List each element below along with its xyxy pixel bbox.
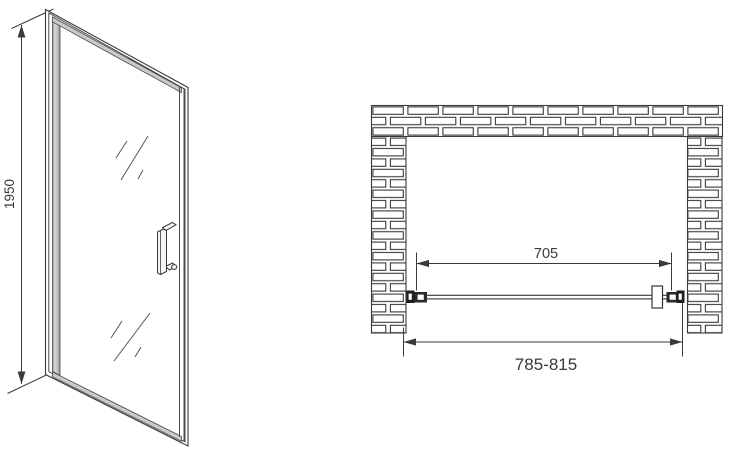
shower-door-drawing: 1950 xyxy=(0,0,734,454)
arrowhead-up xyxy=(18,25,26,38)
glass-width-dimension-705: 705 xyxy=(417,246,672,291)
brick-lintel-wall xyxy=(372,106,723,137)
arrowhead-left xyxy=(417,260,430,267)
clamp-slot xyxy=(670,295,676,300)
profile-pin xyxy=(679,294,682,300)
arrowhead-right xyxy=(659,260,672,267)
clamp-slot xyxy=(418,295,424,300)
brick-wall-right xyxy=(688,137,723,334)
arrowhead-right xyxy=(670,338,683,345)
handle-bar xyxy=(158,229,167,275)
opening-width-dimension: 785-815 xyxy=(404,303,683,374)
wall-profile-left xyxy=(407,291,428,304)
brick-wall-left xyxy=(372,137,407,334)
door-plan xyxy=(407,286,685,308)
profile-pin xyxy=(409,294,412,300)
arrowhead-down xyxy=(18,372,26,385)
door-plan-view: 705 785-815 xyxy=(372,106,723,375)
frame-profile-left xyxy=(53,17,61,376)
wall-profile-right xyxy=(667,291,685,304)
handle-stub-cap xyxy=(172,265,177,270)
height-dimension-label: 1950 xyxy=(2,179,17,209)
door-front-view: 1950 xyxy=(2,9,188,446)
arrowhead-left xyxy=(404,338,417,345)
extension-line-bottom xyxy=(8,374,49,394)
opening-width-dimension-label: 785-815 xyxy=(515,355,577,374)
glass-width-dimension-label: 705 xyxy=(534,246,558,262)
door-handle-plan xyxy=(652,286,663,308)
technical-drawing-sheet: 1950 xyxy=(0,0,734,454)
glass-panel-plan xyxy=(413,295,680,299)
door-front xyxy=(46,10,189,447)
